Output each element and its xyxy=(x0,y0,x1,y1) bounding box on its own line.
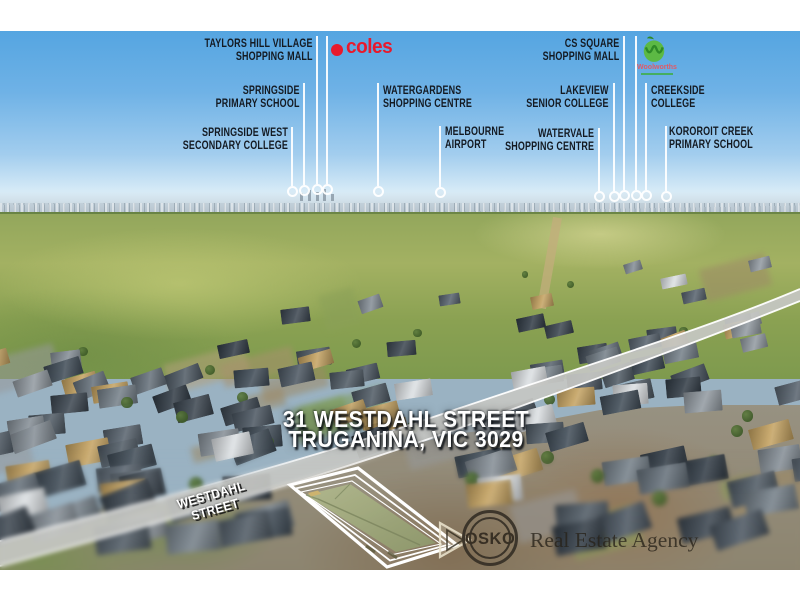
map-marker-ring xyxy=(641,190,652,201)
landmark-label-kororoit: KOROROIT CREEK PRIMARY SCHOOL xyxy=(669,126,753,152)
woolworths-underline xyxy=(641,73,673,75)
photo-area: WESTDAHL STREET 31 WESTDAHL STREET TRUGA… xyxy=(0,31,800,570)
landmark-label-lakeview: LAKEVIEW SENIOR COLLEGE xyxy=(527,85,609,111)
woolworths-logo: Woolworths xyxy=(633,64,681,71)
woolworths-apple-icon xyxy=(641,35,667,63)
leader-line xyxy=(598,128,600,191)
leader-line xyxy=(291,127,293,186)
leader-line xyxy=(665,126,667,191)
leader-line xyxy=(377,83,379,186)
coles-logo: coles xyxy=(346,37,392,57)
leader-line xyxy=(326,36,328,184)
map-marker-ring xyxy=(322,184,333,195)
map-marker-ring xyxy=(594,191,605,202)
landmark-label-creekside: CREEKSIDE COLLEGE xyxy=(651,85,705,111)
leader-line xyxy=(613,83,615,191)
landmark-label-cs-square: CS SQUARE SHOPPING MALL xyxy=(542,38,619,64)
leader-line xyxy=(303,83,305,185)
coles-dot-icon xyxy=(331,44,343,56)
landmark-label-springside-primary: SPRINGSIDE PRIMARY SCHOOL xyxy=(216,85,300,111)
leader-line xyxy=(439,126,441,187)
landmark-label-watervale: WATERVALE SHOPPING CENTRE xyxy=(505,128,594,154)
map-marker-ring xyxy=(287,186,298,197)
map-marker-ring xyxy=(299,185,310,196)
map-marker-ring xyxy=(373,186,384,197)
landmark-annotations: TAYLORS HILL VILLAGE SHOPPING MALL SPRIN… xyxy=(0,31,800,570)
map-marker-ring xyxy=(435,187,446,198)
aerial-property-photo: WESTDAHL STREET 31 WESTDAHL STREET TRUGA… xyxy=(0,0,800,600)
landmark-label-watergardens: WATERGARDENS SHOPPING CENTRE xyxy=(383,85,472,111)
leader-line xyxy=(635,36,637,190)
map-marker-ring xyxy=(661,191,672,202)
leader-line xyxy=(623,36,625,190)
landmark-label-melbourne-airport: MELBOURNE AIRPORT xyxy=(445,126,504,152)
leader-line xyxy=(316,36,318,184)
leader-line xyxy=(645,83,647,190)
map-marker-ring xyxy=(619,190,630,201)
landmark-label-springside-west: SPRINGSIDE WEST SECONDARY COLLEGE xyxy=(183,127,288,153)
landmark-label-taylors-hill: TAYLORS HILL VILLAGE SHOPPING MALL xyxy=(205,38,313,64)
